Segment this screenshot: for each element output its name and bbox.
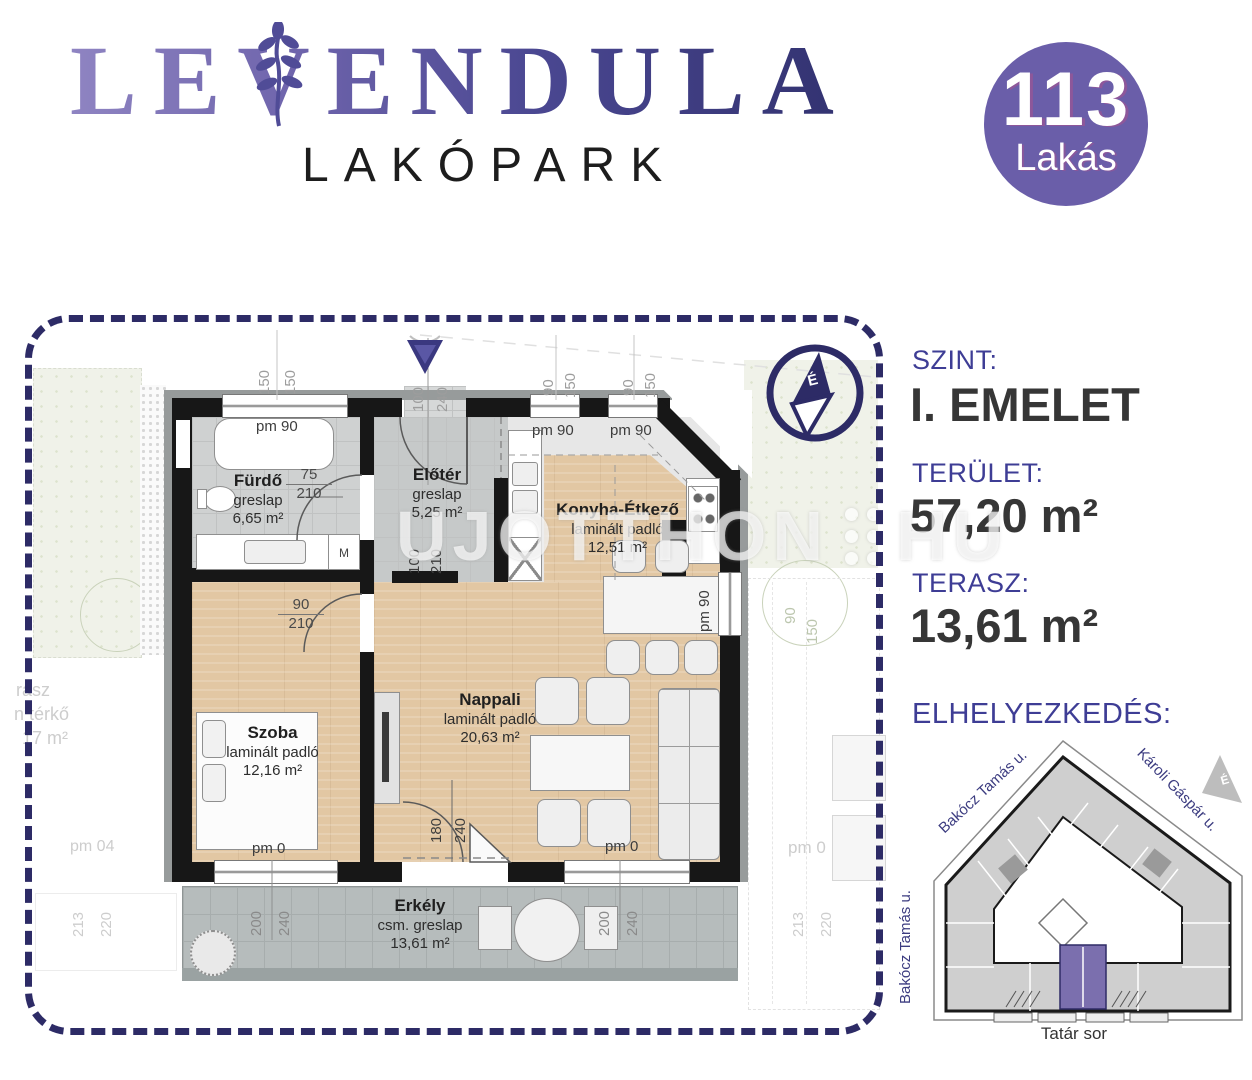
room-label-nappali: Nappali laminált padló 20,63 m² bbox=[420, 690, 560, 747]
watermark-right: HU bbox=[896, 496, 1009, 576]
dim-out-213-left: 213 bbox=[70, 893, 87, 937]
label-kwin-a: pm 90 bbox=[532, 422, 574, 439]
watermark-left: UJOTTHON bbox=[396, 496, 829, 576]
dim-garden-90: 90 bbox=[782, 584, 799, 624]
street-left: Bakócz Tamás u. bbox=[897, 890, 914, 1004]
dim-bal-l-240: 240 bbox=[276, 890, 293, 936]
apartment-number-label: Lakás bbox=[984, 137, 1148, 180]
watermark: UJOTTHON HU bbox=[396, 496, 1009, 576]
dim-bal-r-200: 200 bbox=[596, 890, 613, 936]
apartment-number-badge: 113 Lakás bbox=[984, 42, 1148, 206]
room-label-szoba: Szoba laminált padló 12,16 m² bbox=[205, 723, 340, 780]
label-nappali-sill: pm 0 bbox=[605, 838, 638, 855]
szint-label: SZINT: bbox=[912, 345, 998, 376]
street-bottom: Tatár sor bbox=[1041, 1024, 1107, 1043]
lavender-sprig-icon bbox=[247, 22, 311, 128]
dim-top-150c: 150 bbox=[562, 348, 579, 398]
room-label-erkely: Erkély csm. greslap 13,61 m² bbox=[350, 896, 490, 953]
szint-value: I. EMELET bbox=[910, 377, 1140, 432]
dim-out-213-right: 213 bbox=[790, 893, 807, 937]
neighbor-pm0: pm 0 bbox=[788, 838, 826, 858]
label-kwin-right: pm 90 bbox=[696, 576, 713, 632]
dim-top-150d: 150 bbox=[642, 348, 659, 398]
dim-bal-l-200: 200 bbox=[248, 890, 265, 936]
dim-top-150b: 150 bbox=[282, 345, 299, 395]
terasz-value: 13,61 m² bbox=[910, 598, 1098, 653]
neighbor-terasz: rasz bbox=[16, 680, 50, 701]
dim-top-90a: 90 bbox=[540, 352, 557, 396]
dim-top-150a: 150 bbox=[256, 345, 273, 395]
neighbor-area: 17 m² bbox=[22, 728, 68, 749]
brochure-page: LEVENDULA LAKÓPARK 113 Lakás 90 150 pm 0… bbox=[0, 0, 1252, 1080]
elhelyezkedes-label: ELHELYEZKEDÉS: bbox=[912, 698, 1172, 731]
dim-bal-r-240: 240 bbox=[624, 890, 641, 936]
label-kwin-b: pm 90 bbox=[610, 422, 652, 439]
compass-icon: É bbox=[762, 340, 868, 446]
dim-bdoor-180: 180 bbox=[428, 793, 445, 843]
watermark-dots bbox=[845, 508, 880, 565]
apartment-number: 113 bbox=[984, 56, 1148, 143]
neighbor-terko: n térkő bbox=[14, 704, 69, 725]
dim-garden-150: 150 bbox=[804, 598, 821, 644]
dim-out-220-left: 220 bbox=[98, 893, 115, 937]
dim-out-220-right: 220 bbox=[818, 893, 835, 937]
neighbor-pm04: pm 04 bbox=[70, 838, 114, 856]
dim-szoba-door: 90 210 bbox=[278, 596, 324, 633]
dim-top-240: 240 bbox=[434, 362, 451, 412]
brand-subtitle: LAKÓPARK bbox=[302, 138, 677, 193]
label-szoba-sill: pm 0 bbox=[252, 840, 285, 857]
dim-bdoor-240: 240 bbox=[452, 793, 469, 843]
dim-top-90b: 90 bbox=[620, 352, 637, 396]
label-tub: pm 90 bbox=[256, 418, 298, 435]
brand-logo: LEVENDULA bbox=[70, 28, 851, 133]
dim-bath-door: 75 210 bbox=[286, 466, 332, 503]
terulet-label: TERÜLET: bbox=[912, 458, 1044, 489]
site-plan: É Bakócz Tamás u. Károli Gáspár u. Bakóc… bbox=[890, 733, 1252, 1045]
dim-top-100: 100 bbox=[410, 362, 427, 412]
